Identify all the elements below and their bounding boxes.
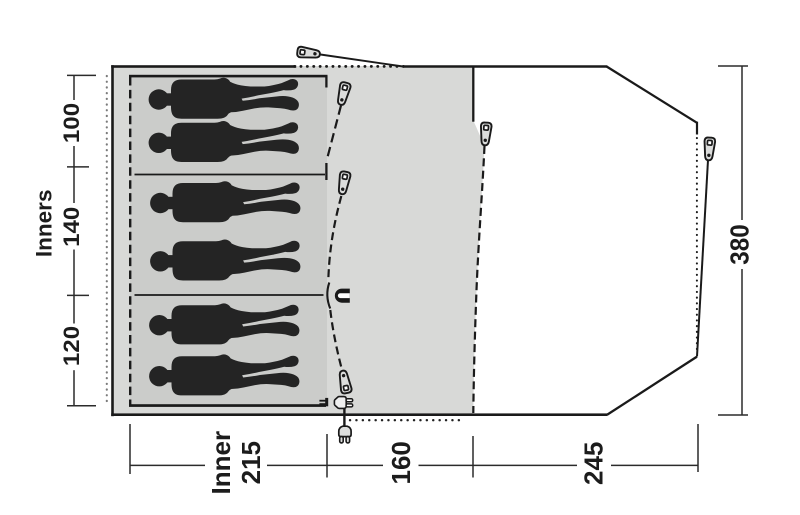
svg-text:Inner: Inner bbox=[206, 431, 236, 495]
svg-text:160: 160 bbox=[386, 441, 416, 484]
svg-text:140: 140 bbox=[59, 207, 84, 247]
svg-text:245: 245 bbox=[578, 442, 608, 485]
svg-text:380: 380 bbox=[726, 224, 755, 264]
svg-text:100: 100 bbox=[59, 103, 84, 143]
svg-text:120: 120 bbox=[59, 326, 84, 366]
svg-text:215: 215 bbox=[236, 441, 266, 484]
svg-text:Inners: Inners bbox=[32, 190, 57, 258]
